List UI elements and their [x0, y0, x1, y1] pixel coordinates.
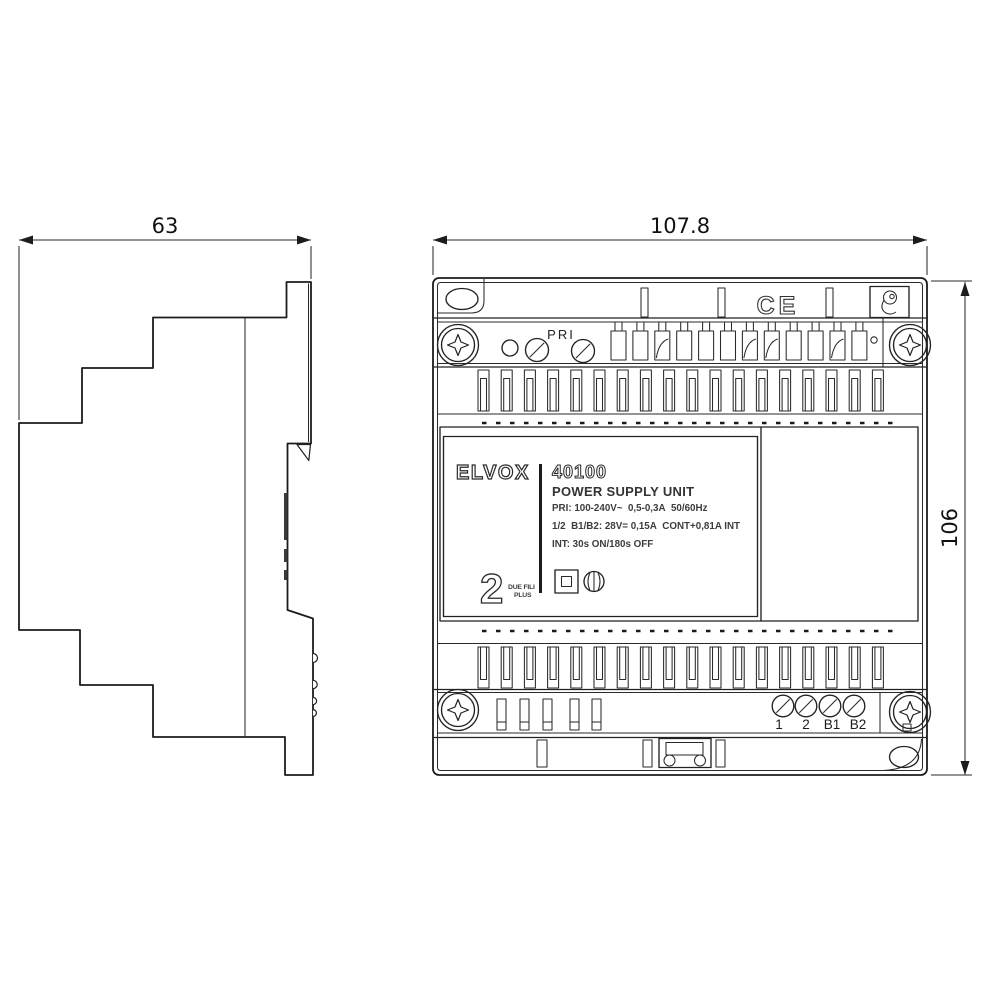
- vent-slot: [617, 370, 628, 411]
- vent-slot: [594, 647, 605, 688]
- small-slot: [592, 699, 601, 730]
- led-hole: [502, 340, 518, 356]
- vent-slot-inner: [504, 379, 510, 412]
- brand-logo: ELVOX: [456, 462, 530, 484]
- dim-arrow-right-icon: [913, 236, 927, 245]
- vent-slot-inner: [527, 379, 533, 412]
- pri-terminal-screws: [526, 339, 595, 363]
- terminal-window: [808, 331, 823, 360]
- terminal-window: [633, 331, 648, 360]
- vent-slot: [710, 370, 721, 411]
- due-fili-plus-logo: 2 DUE FILI PLUS: [480, 565, 535, 612]
- vent-slot-inner: [713, 647, 719, 680]
- vent-slot: [640, 370, 651, 411]
- din-release-clip: [659, 739, 711, 768]
- terminal-label: 2: [802, 717, 810, 732]
- front-height-value: 106: [938, 508, 962, 548]
- vent-slot: [803, 370, 814, 411]
- edge-slot-mark: [284, 549, 288, 562]
- vent-slots-bottom: [478, 647, 883, 688]
- vent-slot: [849, 647, 860, 688]
- vent-slot: [664, 647, 675, 688]
- technical-drawing-page: 63 107.8 106: [0, 0, 1000, 1000]
- vent-slot: [571, 647, 582, 688]
- model-number: 40100: [552, 462, 607, 482]
- edge-slot-mark: [284, 493, 288, 540]
- terminal-window: [611, 331, 626, 360]
- vent-slot-inner: [736, 647, 742, 680]
- vent-slot: [756, 647, 767, 688]
- screw-bump: [313, 710, 316, 717]
- terminal-window: [852, 331, 867, 360]
- terminal-window: [699, 331, 714, 360]
- vent-slot-inner: [550, 647, 556, 680]
- vent-slot: [548, 370, 559, 411]
- terminal-window: [786, 331, 801, 360]
- small-slot: [543, 699, 552, 730]
- vent-slot: [803, 647, 814, 688]
- vent-slot-inner: [689, 379, 695, 412]
- vent-slot: [826, 370, 837, 411]
- vent-slot-inner: [782, 379, 788, 412]
- class-ii-insulation-icon: [555, 570, 578, 593]
- top-mounting-hole: [446, 289, 478, 310]
- top-right-logo-box: [870, 287, 909, 318]
- vent-slot: [501, 647, 512, 688]
- vent-slot-inner: [875, 647, 881, 680]
- drawing-line: [448, 700, 469, 721]
- dimension-front-width: 107.8: [433, 214, 927, 275]
- due-fili-text: DUE FILI: [508, 584, 535, 591]
- screw-bump: [313, 654, 318, 663]
- side-width-value: 63: [152, 214, 179, 238]
- top-terminal-windows: [611, 322, 867, 360]
- wire-clamp-arc: [744, 339, 756, 358]
- vent-slot-inner: [829, 647, 835, 680]
- dim-arrow-left-icon: [19, 236, 33, 245]
- vent-slot-inner: [527, 647, 533, 680]
- bottom-mounting-hole: [890, 747, 919, 768]
- terminal-neck: [812, 322, 819, 331]
- small-slot: [520, 699, 529, 730]
- vent-slot: [524, 370, 535, 411]
- strip-slot: [718, 288, 725, 317]
- terminal-neck: [615, 322, 622, 331]
- terminal-neck: [637, 322, 644, 331]
- dim-arrow-right-icon: [297, 236, 311, 245]
- vent-slot-inner: [759, 379, 765, 412]
- screw-slot: [776, 699, 789, 712]
- due-fili-number: 2: [480, 565, 503, 612]
- drawing-line: [555, 570, 578, 593]
- wire-clamp-arc: [766, 339, 778, 358]
- screw-slot: [576, 344, 590, 358]
- terminal-neck: [681, 322, 688, 331]
- vent-slot-inner: [666, 379, 672, 412]
- terminal-neck: [725, 322, 732, 331]
- pri-label: PRI: [547, 327, 575, 342]
- spec-line-3: INT: 30s ON/180s OFF: [552, 539, 653, 550]
- vent-slot-inner: [597, 379, 603, 412]
- bottom-right-corner-inset: [883, 739, 922, 771]
- top-strip-slots: [641, 288, 833, 317]
- terminal-label: 1: [775, 717, 783, 732]
- vent-slot: [733, 647, 744, 688]
- vent-slot: [664, 370, 675, 411]
- vent-slot: [872, 647, 883, 688]
- screw-bump: [313, 697, 317, 704]
- nameplate-panel: ELVOX 40100 POWER SUPPLY UNIT PRI: 100-2…: [440, 427, 918, 621]
- vent-slot-inner: [504, 647, 510, 680]
- dim-arrow-down-icon: [961, 761, 970, 775]
- vent-slot: [478, 647, 489, 688]
- bottom-strip-slots: [537, 740, 725, 767]
- vent-slot-inner: [805, 647, 811, 680]
- phillips-screw-icon: [438, 325, 479, 366]
- vent-slot-inner: [875, 379, 881, 412]
- clip-window: [666, 743, 703, 756]
- strip-slot: [641, 288, 648, 317]
- vent-slot-inner: [620, 379, 626, 412]
- terminal-neck: [834, 322, 841, 331]
- terminal-neck: [856, 322, 863, 331]
- wire-clamp-arc: [656, 339, 668, 358]
- screw-slot: [799, 699, 812, 712]
- terminal-neck: [703, 322, 710, 331]
- strip-slot: [826, 288, 833, 317]
- vent-slot: [826, 647, 837, 688]
- edge-slot-mark: [284, 570, 288, 580]
- strip-slot: [537, 740, 547, 767]
- small-slot: [570, 699, 579, 730]
- vent-slot-inner: [666, 647, 672, 680]
- output-terminal-screws: [772, 695, 865, 717]
- product-name: POWER SUPPLY UNIT: [552, 484, 694, 499]
- vent-slot-inner: [573, 379, 579, 412]
- side-view: 63: [19, 214, 318, 775]
- vent-slot-inner: [550, 379, 556, 412]
- vent-slot-inner: [805, 379, 811, 412]
- vent-slot: [733, 370, 744, 411]
- dim-arrow-left-icon: [433, 236, 447, 245]
- terminal-neck: [659, 322, 666, 331]
- clip-hole: [664, 755, 675, 766]
- vent-slot-inner: [643, 379, 649, 412]
- vent-slot: [548, 647, 559, 688]
- drawing-line: [588, 572, 600, 592]
- vent-slot-inner: [782, 647, 788, 680]
- clip-hole: [695, 755, 706, 766]
- strip-slot: [643, 740, 652, 767]
- vent-slot: [780, 647, 791, 688]
- vent-slot: [756, 370, 767, 411]
- front-width-value: 107.8: [650, 214, 710, 238]
- vent-slot: [571, 370, 582, 411]
- vent-slot-inner: [481, 379, 487, 412]
- drawing-line: [562, 577, 572, 587]
- nameplate-divider-bar: [539, 464, 542, 593]
- vent-slot-inner: [573, 647, 579, 680]
- vent-slot: [687, 647, 698, 688]
- terminal-window: [677, 331, 692, 360]
- vent-slots-top: [478, 370, 883, 411]
- vent-slot: [780, 370, 791, 411]
- vent-slot-inner: [713, 379, 719, 412]
- vent-slot-inner: [620, 647, 626, 680]
- vent-slot-inner: [689, 647, 695, 680]
- vent-slot-inner: [852, 647, 858, 680]
- dimension-front-height: 106: [931, 281, 972, 775]
- due-fili-text: PLUS: [514, 592, 532, 599]
- terminal-neck: [768, 322, 775, 331]
- vent-slot-inner: [481, 647, 487, 680]
- dim-arrow-up-icon: [961, 282, 970, 296]
- din-rail-hook: [297, 445, 311, 461]
- phillips-screw-icon: [890, 325, 931, 366]
- vent-slot: [478, 370, 489, 411]
- vent-slot-inner: [643, 647, 649, 680]
- circle-hook-emblem-icon: [890, 294, 894, 298]
- small-slot: [497, 699, 506, 730]
- spec-line-2: 1/2 B1/B2: 28V= 0,15A CONT+0,81A INT: [552, 521, 740, 532]
- phillips-screw-icon: [438, 690, 479, 731]
- strip-slot: [716, 740, 725, 767]
- bottom-small-slots: [497, 699, 601, 730]
- drawing-line: [900, 702, 921, 723]
- screw-slot: [530, 343, 544, 357]
- side-profile-outline: [19, 282, 313, 775]
- vent-slot: [501, 370, 512, 411]
- drawing-line: [900, 335, 921, 356]
- wire-clamp-arc: [832, 339, 844, 358]
- screw-slot: [847, 699, 860, 712]
- terminal-neck: [790, 322, 797, 331]
- terminal-label: B1: [824, 717, 841, 732]
- screw-bump: [313, 680, 317, 688]
- ce-mark: CE: [757, 292, 800, 320]
- vent-slot: [849, 370, 860, 411]
- pilot-hole: [871, 337, 877, 343]
- vent-slot: [872, 370, 883, 411]
- vent-slot-inner: [736, 379, 742, 412]
- vent-slot: [524, 647, 535, 688]
- vent-slot-inner: [597, 647, 603, 680]
- certification-mark-icon: [584, 572, 604, 592]
- vent-slot-inner: [852, 379, 858, 412]
- vent-slot: [617, 647, 628, 688]
- phillips-screw-icon: [890, 692, 931, 733]
- vent-slot: [594, 370, 605, 411]
- front-view: 107.8 106 CE: [433, 214, 972, 775]
- spec-line-1: PRI: 100-240V~ 0,5-0,3A 50/60Hz: [552, 503, 708, 514]
- screw-slot: [823, 699, 836, 712]
- terminal-neck: [746, 322, 753, 331]
- drawing-line: [448, 335, 469, 356]
- vent-slot-inner: [759, 647, 765, 680]
- vent-slot-inner: [829, 379, 835, 412]
- elvox-40100-dimensional-drawing: 63 107.8 106: [0, 0, 1000, 1000]
- vent-slot: [687, 370, 698, 411]
- vent-slot: [710, 647, 721, 688]
- terminal-window: [721, 331, 736, 360]
- terminal-label: B2: [850, 717, 867, 732]
- vent-slot: [640, 647, 651, 688]
